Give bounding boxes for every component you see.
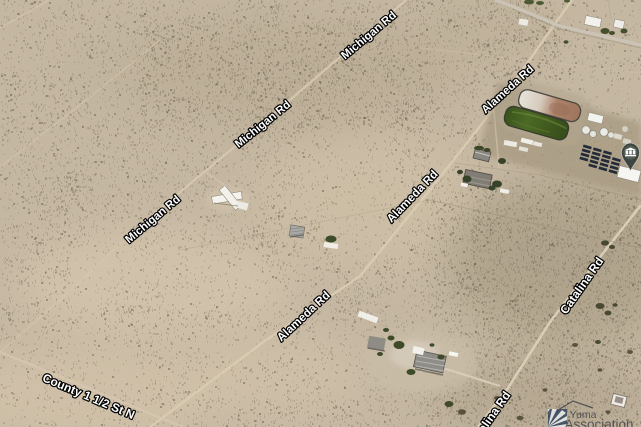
svg-text:Association: Association (564, 417, 633, 427)
